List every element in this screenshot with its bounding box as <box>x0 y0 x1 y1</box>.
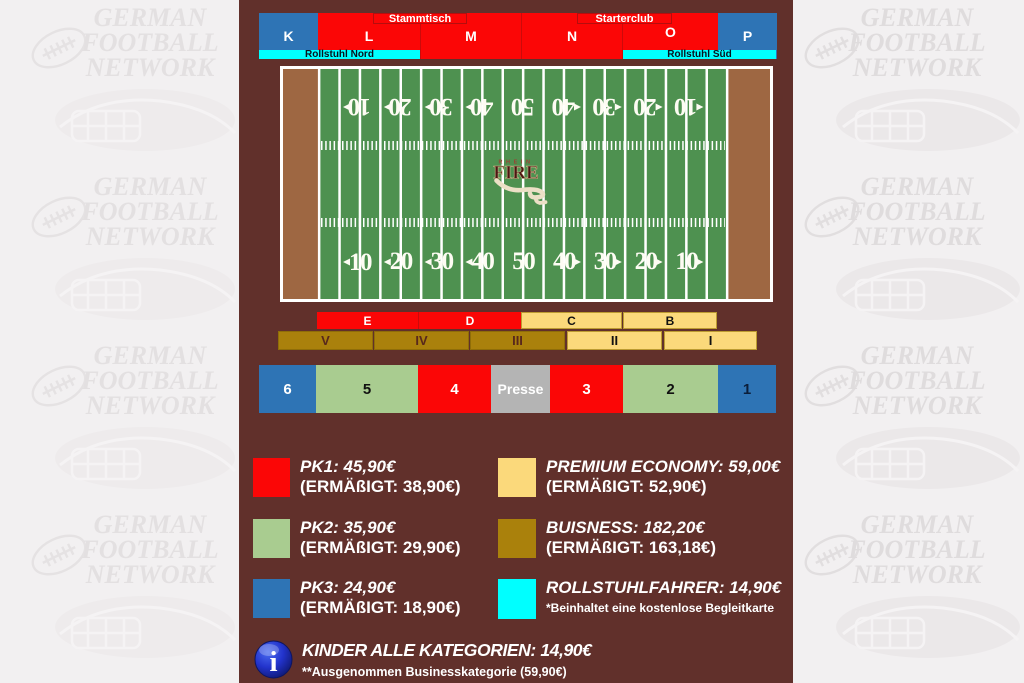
svg-text:40: 40 <box>552 93 575 120</box>
svg-text:20: 20 <box>635 248 658 275</box>
svg-text:i: i <box>269 646 277 678</box>
svg-text:40: 40 <box>470 93 493 120</box>
svg-text:20: 20 <box>634 93 657 120</box>
svg-text:10: 10 <box>349 249 372 276</box>
svg-text:10: 10 <box>348 93 371 120</box>
svg-text:30: 30 <box>593 93 616 120</box>
svg-text:50: 50 <box>511 93 534 120</box>
svg-text:FIRE: FIRE <box>493 163 538 184</box>
svg-text:20: 20 <box>390 248 413 275</box>
svg-text:30: 30 <box>430 93 453 120</box>
svg-text:10: 10 <box>675 248 698 275</box>
svg-text:40: 40 <box>553 248 576 275</box>
svg-text:10: 10 <box>674 93 697 120</box>
svg-text:50: 50 <box>512 248 535 275</box>
svg-text:40: 40 <box>471 248 494 275</box>
svg-text:20: 20 <box>389 93 412 120</box>
svg-text:30: 30 <box>431 248 454 275</box>
svg-text:30: 30 <box>594 248 617 275</box>
